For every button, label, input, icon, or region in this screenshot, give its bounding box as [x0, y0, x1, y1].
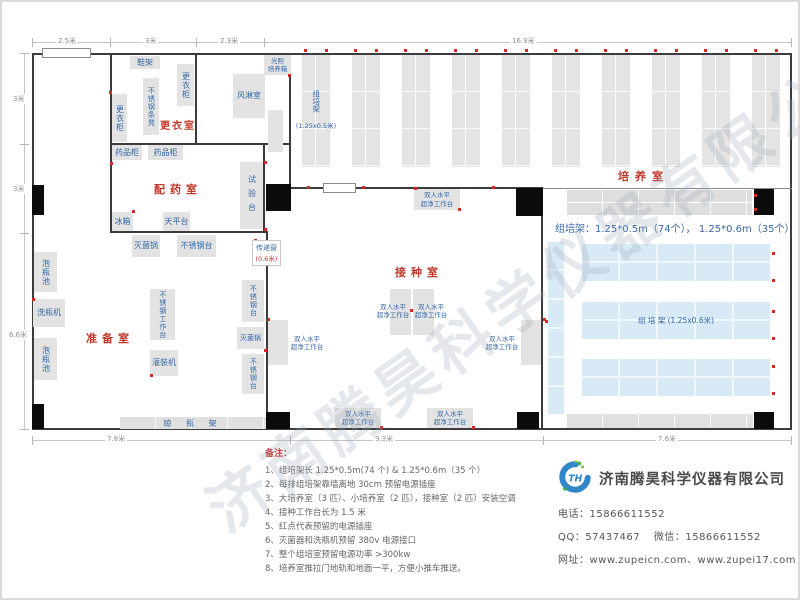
locker-left: 更衣柜	[112, 94, 127, 142]
sterilizer-label: 灭菌锅	[240, 334, 261, 343]
dim-top-4: 16.9米	[510, 36, 537, 46]
entrance-door	[42, 48, 91, 58]
note-item: 8、培养室推拉门地轨和地面一平，方便小推车推送。	[265, 562, 555, 576]
power-outlet-dot	[754, 208, 757, 211]
room-label-culture: 培养室	[618, 168, 669, 184]
dim-tick	[20, 53, 29, 54]
room-label-inoculation: 接种室	[395, 264, 443, 280]
ss-table-label: 不锈钢台	[249, 285, 258, 317]
power-outlet-dot	[458, 208, 461, 211]
power-outlet-dot	[754, 49, 757, 52]
power-outlet-dot	[304, 49, 307, 52]
power-outlet-dot	[772, 337, 775, 340]
medicine-cabinet-2: 药品柜	[148, 145, 183, 160]
filling-machine-label: 灌装机	[152, 358, 176, 368]
ss-table-label: 不锈钢台	[181, 241, 213, 251]
dim-left-1: 3米	[11, 94, 26, 104]
clean-bench-right-wall	[521, 320, 541, 365]
dim-top-1: 2.5米	[56, 36, 78, 46]
phone-value: 15866611552	[590, 509, 666, 520]
power-outlet-dot	[725, 49, 728, 52]
power-outlet-dot	[380, 426, 383, 429]
company-phone-row: 电话：15866611552	[558, 505, 796, 520]
culture-blue-rack-1	[582, 244, 770, 281]
shoe-rack: 鞋架	[130, 56, 160, 69]
power-outlet-dot	[772, 310, 775, 313]
room-label-changing: 更衣室	[160, 117, 196, 132]
fridge-label: 冰箱	[115, 217, 131, 227]
note-item: 6、灭菌器和洗瓶机预留 380v 电源接口	[265, 534, 555, 548]
blue-rack-label: 组 培 架 (1.25x0.6米)	[638, 315, 714, 326]
power-outlet-dot	[109, 91, 112, 94]
bottle-drying-rack: 晾 瓶 架	[120, 417, 266, 429]
clean-bench-label: 双人水平 超净工作台	[409, 303, 453, 319]
power-outlet-dot	[492, 186, 495, 189]
pillar	[32, 404, 44, 429]
culture-rack-column	[552, 55, 580, 167]
qq-label: QQ：	[558, 532, 585, 543]
rack-label-vertical: 组培架	[302, 90, 330, 116]
company-block: TH 济南腾昊科学仪器有限公司 电话：15866611552 QQ：574374…	[558, 460, 796, 566]
power-outlet-dot	[362, 186, 365, 189]
culture-rack-column	[752, 55, 780, 167]
pass-window-size: (0.6米)	[256, 253, 278, 263]
locker-label: 更衣柜	[115, 105, 125, 132]
test-bench: 试验台	[240, 162, 263, 229]
pillar	[754, 412, 774, 429]
stainless-slat-bench: 不锈钢条凳	[143, 78, 159, 135]
bottle-soak-pool-1: 泡瓶池	[34, 252, 57, 292]
wall-inner-v4	[263, 143, 265, 232]
dim-tick	[20, 429, 29, 430]
room-label-dispensing: 配药室	[154, 181, 202, 197]
power-outlet-dot	[410, 309, 413, 312]
clean-bench-label: 双人水平 超净工作台	[288, 335, 326, 351]
dim-left-3: 6.6米	[7, 330, 29, 340]
company-logo: TH	[558, 460, 592, 497]
dim-tick	[32, 38, 33, 47]
qq-value: 57437467	[585, 532, 640, 543]
wechat-value: 15866611552	[685, 532, 761, 543]
dim-tick	[110, 38, 111, 47]
logo-text: TH	[568, 473, 582, 484]
note-item: 5、红点代表预留的电源插座	[265, 520, 555, 534]
wall-inner-h2	[110, 231, 268, 233]
power-outlet-dot	[264, 228, 267, 231]
power-outlet-dot	[675, 49, 678, 52]
ss-worktable-label: 不锈钢工作台	[158, 291, 167, 339]
power-outlet-dot	[504, 49, 507, 52]
dim-bottom-2: 9.3米	[373, 434, 395, 444]
power-outlet-dot	[525, 49, 528, 52]
ss-table-3: 不锈钢台	[242, 354, 264, 394]
locker-right: 更衣柜	[177, 64, 194, 106]
power-outlet-dot	[267, 318, 270, 321]
power-outlet-dot	[110, 162, 113, 165]
culture-blue-rack-2: 组 培 架 (1.25x0.6米)	[582, 302, 770, 339]
clean-bench-bottom-1: 双人水平 超净工作台	[335, 408, 381, 428]
clean-bench-label: 双人水平 超净工作台	[434, 410, 467, 426]
culture-gray-rack	[567, 190, 752, 215]
ss-table-label: 不锈钢台	[249, 358, 258, 390]
balance-table-label: 天平台	[165, 217, 189, 227]
dim-top-3: 2.3米	[218, 36, 240, 46]
bottle-soak-pool-label: 泡瓶池	[41, 259, 51, 286]
company-qq-row: QQ：57437467 微信：15866611552	[558, 528, 796, 543]
medicine-cabinet-1: 药品柜	[112, 145, 142, 160]
web-value: www.zupeicn.com、www.zupei17.com	[590, 555, 796, 566]
clean-bench-bottom-2: 双人水平 超净工作台	[427, 408, 473, 428]
clean-bench-top: 双人水平 超净工作台	[414, 189, 460, 210]
bottle-soak-pool-label: 泡瓶池	[41, 346, 51, 373]
rack-summary: 组培架：1.25*0.5m（74个）， 1.25*0.6m（35个）	[555, 224, 791, 237]
pillar	[517, 412, 539, 429]
room-label-prep: 准备室	[86, 330, 134, 346]
power-outlet-dot	[32, 298, 35, 301]
power-outlet-dot	[425, 49, 428, 52]
power-outlet-dot	[150, 374, 153, 377]
culture-rack-column	[402, 55, 430, 167]
note-item: 4、接种工作台长为 1.5 米	[265, 506, 555, 520]
rack-label: 组培架	[311, 90, 320, 113]
power-outlet-dot	[754, 194, 757, 197]
power-outlet-dot	[625, 49, 628, 52]
light-incubator-label: 光照 培养箱	[268, 57, 288, 73]
power-outlet-dot	[654, 49, 657, 52]
culture-blue-rack-3	[582, 359, 770, 396]
filling-machine: 灌装机	[150, 350, 178, 376]
dim-tick	[32, 436, 33, 445]
wall-outer-right	[790, 53, 792, 430]
power-outlet-dot	[472, 426, 475, 429]
notes-title: 备注：	[265, 447, 555, 461]
ss-table-1: 不锈钢台	[177, 235, 216, 257]
storage-box	[268, 110, 283, 152]
power-outlet-dot	[475, 49, 478, 52]
slat-bench-label: 不锈钢条凳	[147, 87, 156, 127]
culture-rack-column	[502, 55, 530, 167]
fridge: 冰箱	[112, 212, 133, 231]
culture-rack-column	[702, 55, 730, 167]
pillar	[32, 185, 44, 215]
culture-rack-column	[652, 55, 680, 167]
power-outlet-dot	[772, 252, 775, 255]
air-shower-label: 风淋室	[237, 91, 261, 101]
power-outlet-dot	[288, 74, 291, 77]
floorplan-canvas: 2.5米 3米 2.3米 16.9米 3米 3米 6.6米 7.8米 9.3米 …	[0, 0, 800, 600]
medicine-cabinet-label: 药品柜	[115, 148, 139, 158]
wall-inoculation-culture	[541, 187, 543, 430]
culture-rack-column	[602, 55, 630, 167]
shoe-rack-label: 鞋架	[137, 58, 153, 68]
power-outlet-dot	[414, 187, 417, 190]
test-bench-label: 试验台	[247, 175, 257, 217]
power-outlet-dot	[264, 161, 267, 164]
locker-label: 更衣柜	[181, 72, 191, 99]
power-outlet-dot	[354, 49, 357, 52]
power-outlet-dot	[307, 186, 310, 189]
ss-table-2: 不锈钢台	[242, 280, 264, 322]
bottle-washer-label: 洗瓶机	[37, 308, 61, 318]
company-web-row: 网址：www.zupeicn.com、www.zupei17.com	[558, 551, 796, 566]
power-outlet-dot	[375, 49, 378, 52]
air-shower: 风淋室	[233, 74, 265, 118]
dim-top-2: 3米	[143, 36, 158, 46]
pass-window: 传递窗 (0.6米)	[252, 240, 281, 266]
power-outlet-dot	[704, 49, 707, 52]
ss-worktable: 不锈钢工作台	[150, 289, 175, 340]
clean-bench-label: 双人水平 超净工作台	[483, 335, 521, 351]
dim-tick	[791, 436, 792, 445]
pillar	[754, 189, 774, 215]
power-outlet-dot	[554, 49, 557, 52]
dim-bottom-1: 7.8米	[105, 434, 127, 444]
web-label: 网址：	[558, 555, 590, 566]
note-item: 1、组培架长 1.25*0.5m(74 个) & 1.25*0.6m（35 个）	[265, 464, 555, 478]
note-item: 7、整个组培室预留电源功率 >300kw	[265, 548, 555, 562]
dim-tick	[290, 436, 291, 445]
balance-table: 天平台	[163, 212, 190, 231]
dim-tick	[196, 38, 197, 47]
power-outlet-dot	[575, 49, 578, 52]
clean-bench-label: 双人水平 超净工作台	[421, 191, 454, 207]
wechat-label: 微信：	[654, 532, 686, 543]
bottle-washer: 洗瓶机	[33, 299, 65, 327]
dim-tick	[20, 144, 29, 145]
dim-left-2: 3米	[11, 184, 26, 194]
bottle-drying-rack-label: 晾 瓶 架	[163, 418, 222, 429]
sterilizer-2: 灭菌锅	[237, 327, 264, 349]
culture-bottom-rack	[567, 414, 753, 428]
dim-tick	[264, 38, 265, 47]
power-outlet-dot	[404, 49, 407, 52]
power-outlet-dot	[772, 392, 775, 395]
notes-block: 备注： 1、组培架长 1.25*0.5m(74 个) & 1.25*0.6m（3…	[265, 447, 555, 576]
pass-window-label: 传递窗	[256, 243, 277, 253]
power-outlet-dot	[772, 279, 775, 282]
power-outlet-dot	[772, 365, 775, 368]
culture-rack-column	[352, 55, 380, 167]
power-outlet-dot	[325, 49, 328, 52]
power-outlet-dot	[132, 210, 135, 213]
power-outlet-dot	[604, 49, 607, 52]
light-incubator: 光照 培养箱	[264, 55, 291, 75]
pillar	[516, 188, 543, 216]
power-outlet-dot	[775, 49, 778, 52]
power-outlet-dot	[264, 349, 267, 352]
sterilizer-label: 灭菌锅	[134, 241, 158, 251]
sterilizer-1: 灭菌锅	[132, 235, 160, 257]
rack-size-label: (1.25x0.5米)	[294, 122, 338, 130]
dim-tick	[791, 38, 792, 47]
company-name: 济南腾昊科学仪器有限公司	[599, 468, 785, 489]
note-item: 3、大培养室（3 匹）、小培养室（2 匹），接种室（2 匹）安装空调	[265, 492, 555, 506]
bottle-soak-pool-2: 泡瓶池	[34, 338, 57, 380]
left-dimension-line	[24, 53, 25, 430]
culture-blue-rack-vertical	[548, 242, 564, 414]
pillar	[266, 184, 291, 211]
clean-bench-label: 双人水平 超净工作台	[342, 410, 375, 426]
clean-bench-left-wall	[268, 320, 288, 365]
culture-rack-column	[452, 55, 480, 167]
pillar	[266, 412, 290, 429]
sliding-door	[323, 183, 356, 193]
note-item: 2、每排组培架靠墙离地 30cm 预留电源插座	[265, 478, 555, 492]
dim-bottom-3: 7.6米	[656, 434, 678, 444]
dim-tick	[543, 436, 544, 445]
dim-tick	[20, 233, 29, 234]
phone-label: 电话：	[558, 509, 590, 520]
medicine-cabinet-label: 药品柜	[154, 148, 178, 158]
power-outlet-dot	[454, 49, 457, 52]
